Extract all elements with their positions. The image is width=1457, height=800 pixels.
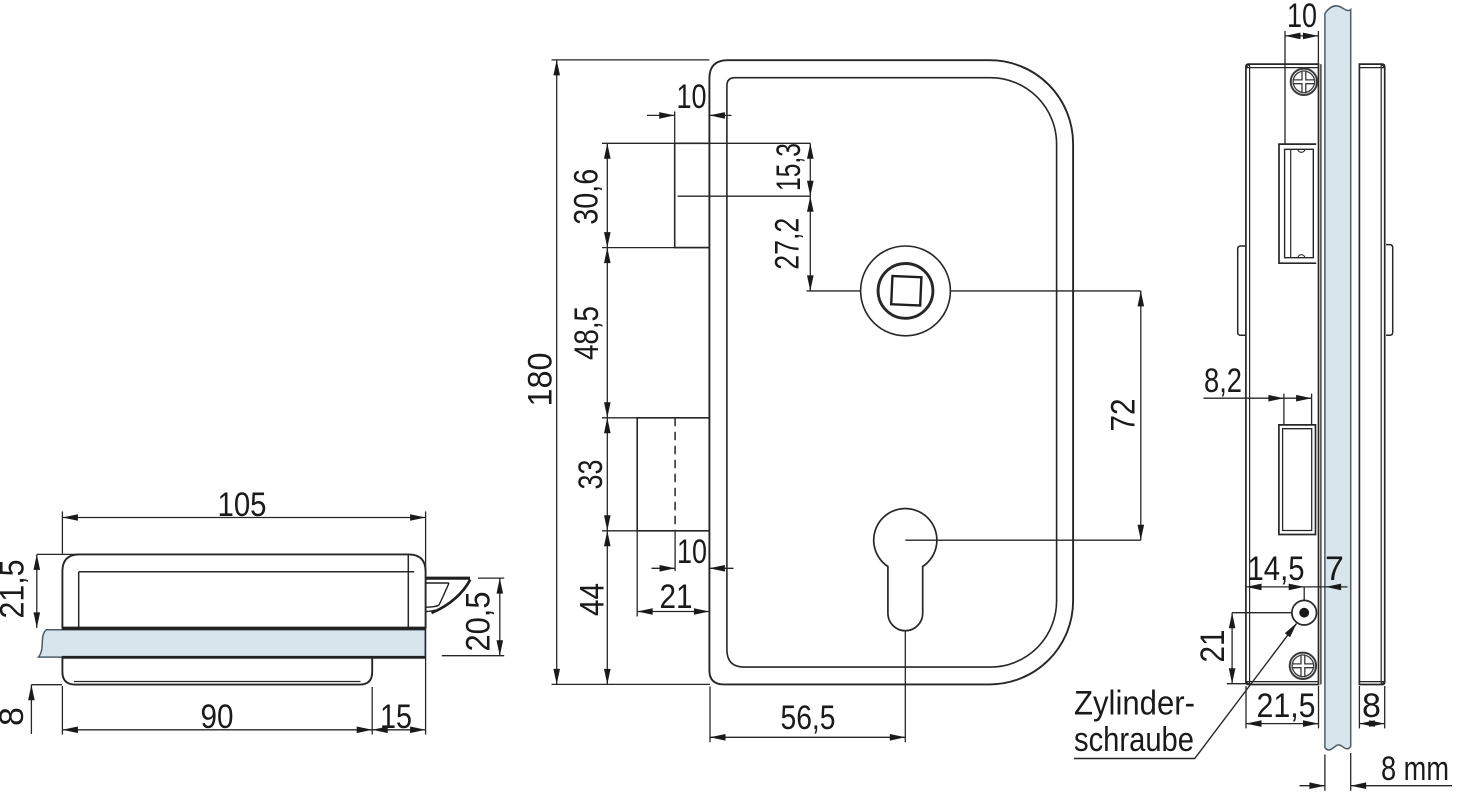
svg-text:10: 10 (677, 533, 707, 571)
svg-text:33: 33 (572, 460, 610, 490)
svg-text:15: 15 (380, 698, 412, 736)
svg-text:21,5: 21,5 (1257, 687, 1316, 725)
svg-text:8,2: 8,2 (1204, 362, 1242, 400)
svg-text:14,5: 14,5 (1248, 550, 1305, 588)
svg-text:7: 7 (1325, 550, 1344, 588)
svg-text:180: 180 (522, 353, 560, 407)
svg-text:schraube: schraube (1074, 721, 1194, 759)
svg-text:10: 10 (677, 78, 707, 116)
svg-text:21,5: 21,5 (0, 560, 32, 619)
svg-text:8: 8 (0, 707, 31, 726)
svg-text:72: 72 (1105, 399, 1143, 432)
svg-text:8 mm: 8 mm (1381, 750, 1449, 788)
svg-text:30,6: 30,6 (568, 169, 606, 225)
svg-text:21: 21 (660, 578, 693, 616)
svg-text:105: 105 (218, 486, 267, 524)
svg-text:56,5: 56,5 (781, 699, 836, 737)
svg-text:8: 8 (1362, 687, 1381, 725)
svg-text:Zylinder-: Zylinder- (1074, 685, 1195, 723)
svg-text:21: 21 (1194, 630, 1232, 663)
svg-text:44: 44 (574, 583, 612, 616)
svg-text:90: 90 (201, 698, 234, 736)
svg-text:10: 10 (1287, 0, 1317, 35)
svg-text:48,5: 48,5 (568, 306, 606, 360)
svg-text:27,2: 27,2 (769, 218, 807, 270)
svg-text:20,5: 20,5 (460, 592, 498, 652)
svg-text:15,3: 15,3 (770, 143, 808, 191)
